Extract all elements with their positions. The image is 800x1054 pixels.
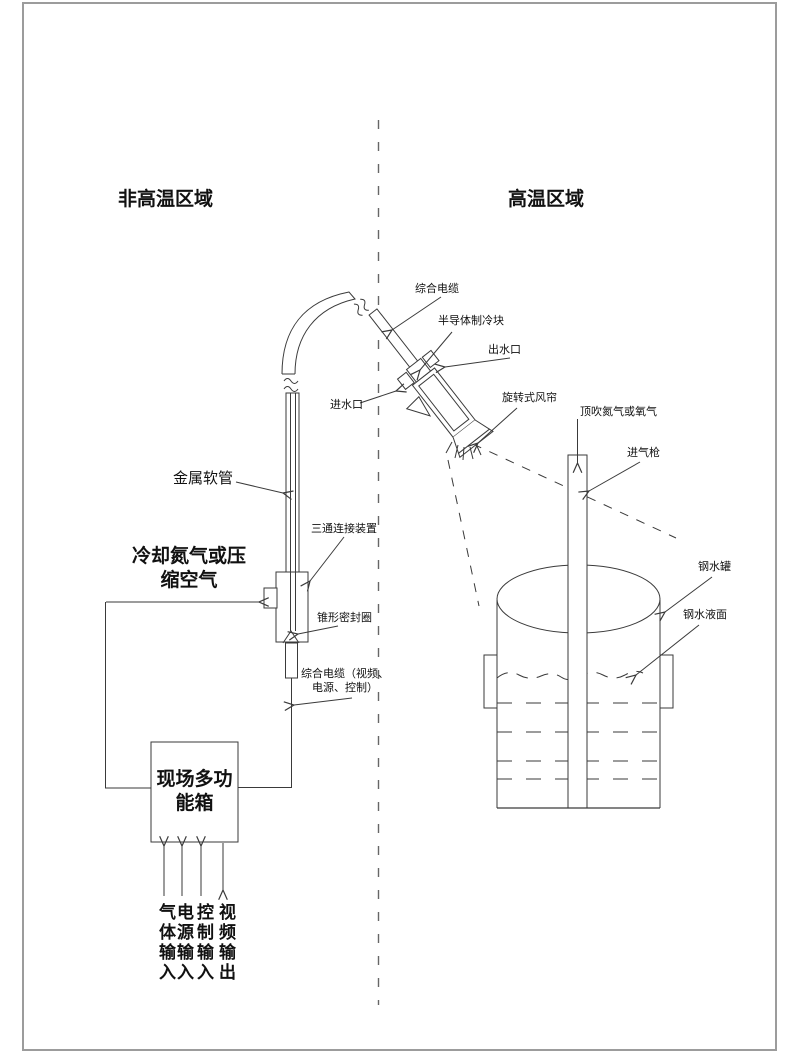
leader-surface xyxy=(636,625,699,675)
label-integrated-cable-full: 综合电缆（视频、 电源、控制） xyxy=(300,667,390,695)
cable-connector xyxy=(286,643,298,678)
tee-gas-inlet-stub xyxy=(264,588,277,608)
leader-tee-connector xyxy=(310,537,344,581)
label-cable-full-line2: 电源、控制） xyxy=(312,682,378,694)
leader-cable-full xyxy=(294,698,352,705)
diagram-canvas xyxy=(0,0,800,1054)
label-top-blow-gas: 顶吹氮气或氧气 xyxy=(580,406,657,419)
diagram-page: 非高温区域 高温区域 综合电缆 半导体制冷块 出水口 进水口 旋转式风帘 顶吹氮… xyxy=(0,0,800,1054)
label-water-inlet: 进水口 xyxy=(330,399,363,412)
leader-semiconductor-cooler xyxy=(420,332,452,370)
label-cable-full-line1: 综合电缆（视频、 xyxy=(301,668,389,680)
tee-connector-box xyxy=(276,572,308,642)
label-field-box-line1: 现场多功 xyxy=(156,769,232,790)
leader-lines xyxy=(236,297,712,705)
label-molten-steel-surface: 钢水液面 xyxy=(683,609,727,622)
label-metal-hose: 金属软管 xyxy=(173,470,233,487)
camera-sightline-left xyxy=(448,460,479,606)
cable-break-squiggle xyxy=(352,298,371,317)
label-field-multifunction-box: 现场多功 能箱 xyxy=(151,742,238,842)
leader-tank xyxy=(665,577,712,612)
tank-left-trunnion xyxy=(484,655,497,708)
label-rotary-air-curtain: 旋转式风帘 xyxy=(502,392,557,405)
label-cooling-gas: 冷却氮气或压 缩空气 xyxy=(126,545,252,593)
tank-right-trunnion xyxy=(660,655,673,708)
label-integrated-cable: 综合电缆 xyxy=(415,283,459,296)
label-cooling-gas-line1: 冷却氮气或压 xyxy=(132,546,246,567)
leader-integrated-cable xyxy=(392,297,441,330)
leader-gas-lance xyxy=(589,462,640,491)
leader-metal-hose xyxy=(236,482,283,493)
region-title-right: 高温区域 xyxy=(508,189,584,211)
metal-hose-pipe xyxy=(286,393,299,572)
label-gas-lance: 进气枪 xyxy=(627,447,660,460)
label-water-outlet: 出水口 xyxy=(488,344,521,357)
label-semiconductor-cooler: 半导体制冷块 xyxy=(438,315,504,328)
cooling-gas-route xyxy=(106,602,152,788)
cable-to-field-box xyxy=(238,678,292,788)
label-conical-seal: 锥形密封圈 xyxy=(317,612,372,625)
camera-cable-tube xyxy=(369,309,419,369)
pipe-break-squiggle xyxy=(284,379,298,392)
curved-hose-arc xyxy=(282,292,355,374)
region-title-left: 非高温区域 xyxy=(118,189,213,211)
label-field-box-line2: 能箱 xyxy=(175,793,213,814)
io-label-video-output: 视频输出 xyxy=(213,903,238,983)
leader-water-outlet xyxy=(445,358,510,367)
page-frame xyxy=(23,3,776,1050)
gas-lance-pipe xyxy=(568,455,587,808)
label-molten-steel-tank: 钢水罐 xyxy=(698,561,731,574)
label-tee-connector: 三通连接装置 xyxy=(311,523,377,536)
label-cooling-gas-line2: 缩空气 xyxy=(160,570,217,591)
